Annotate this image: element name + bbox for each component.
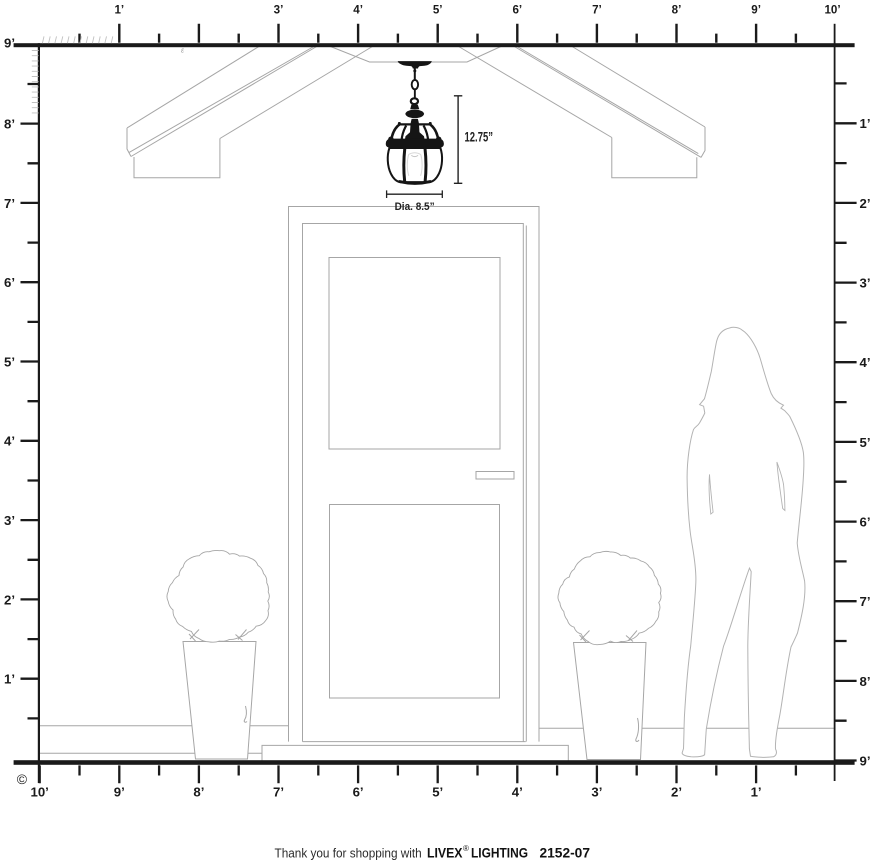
svg-text:6’: 6’	[860, 515, 871, 530]
svg-text:6’: 6’	[512, 4, 522, 17]
svg-text:1’: 1’	[751, 785, 762, 800]
svg-text:4’: 4’	[512, 785, 523, 800]
svg-text:1’: 1’	[860, 116, 871, 131]
svg-text:©: ©	[17, 771, 28, 787]
svg-text:5’: 5’	[860, 435, 871, 450]
svg-text:9’: 9’	[860, 753, 871, 768]
svg-text:8’: 8’	[672, 4, 682, 17]
svg-text:LIGHTING: LIGHTING	[471, 846, 528, 862]
svg-text:LIVEX: LIVEX	[427, 846, 463, 862]
svg-text:5’: 5’	[433, 4, 443, 17]
svg-text:1’: 1’	[4, 672, 15, 687]
svg-text:9’: 9’	[4, 36, 15, 51]
svg-text:3’: 3’	[4, 513, 15, 528]
svg-text:7’: 7’	[273, 785, 284, 800]
svg-text:6’: 6’	[353, 785, 364, 800]
svg-text:8’: 8’	[193, 785, 204, 800]
svg-text:2’: 2’	[4, 592, 15, 607]
svg-text:4’: 4’	[860, 355, 871, 370]
svg-text:4’: 4’	[353, 4, 363, 17]
svg-text:®: ®	[463, 844, 469, 853]
svg-text:3’: 3’	[591, 785, 602, 800]
svg-text:9’: 9’	[751, 4, 761, 17]
svg-text:9’: 9’	[114, 785, 125, 800]
svg-text:8’: 8’	[860, 674, 871, 689]
svg-text:2152-07: 2152-07	[540, 846, 591, 862]
svg-text:10’: 10’	[824, 4, 840, 17]
svg-text:12.75”: 12.75”	[465, 130, 494, 145]
svg-text:8’: 8’	[4, 117, 15, 132]
svg-text:3’: 3’	[860, 276, 871, 291]
svg-text:2’: 2’	[860, 196, 871, 211]
svg-text:4’: 4’	[4, 434, 15, 449]
svg-text:Thank you for shopping with: Thank you for shopping with	[275, 847, 422, 861]
svg-text:7’: 7’	[860, 594, 871, 609]
svg-text:7’: 7’	[4, 196, 15, 211]
svg-text:5’: 5’	[432, 785, 443, 800]
svg-text:6’: 6’	[4, 275, 15, 290]
svg-text:2’: 2’	[671, 785, 682, 800]
svg-text:10’: 10’	[31, 785, 49, 800]
svg-text:7’: 7’	[592, 4, 602, 17]
svg-text:1’: 1’	[114, 4, 124, 17]
svg-text:3’: 3’	[274, 4, 284, 17]
svg-text:Dia. 8.5”: Dia. 8.5”	[395, 201, 435, 213]
svg-text:5’: 5’	[4, 354, 15, 369]
